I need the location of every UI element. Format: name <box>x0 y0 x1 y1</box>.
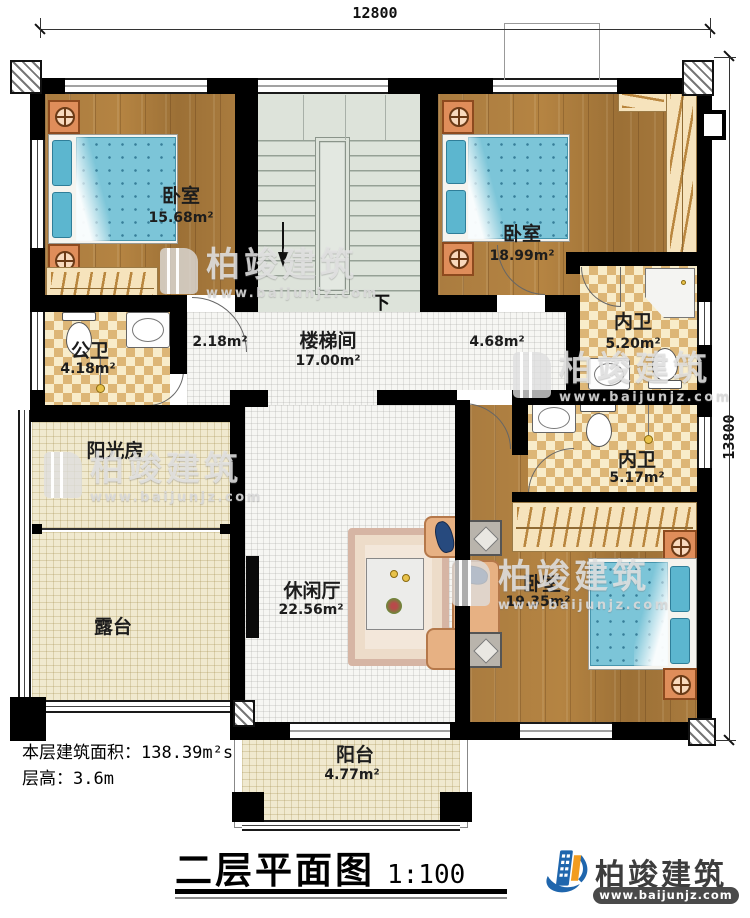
divider-post <box>32 524 42 534</box>
terrace-side-railing <box>18 410 31 702</box>
sink-basin <box>594 363 624 386</box>
bed-sheet-fold <box>76 137 110 241</box>
wall <box>697 345 712 417</box>
stairs-down-label: 下 <box>372 289 390 315</box>
door-arc <box>148 370 184 406</box>
wall <box>455 400 470 725</box>
wall <box>566 266 580 274</box>
plan-scale: 1:100 <box>387 860 465 890</box>
wall <box>566 390 712 405</box>
room-label: 阳台 <box>315 745 395 767</box>
wall <box>697 468 712 724</box>
room-area: 2.18m² <box>180 334 260 350</box>
window <box>30 140 45 248</box>
nightstand <box>48 100 80 134</box>
plan-notes: 本层建筑面积：138.39m²s 层高：3.6m <box>22 740 233 793</box>
nightstand <box>442 242 474 276</box>
nightstand-lamp-icon <box>671 675 691 695</box>
balcony-railing <box>242 820 460 831</box>
room-area: 4.18m² <box>46 361 130 377</box>
room-label: 内卫 <box>593 312 673 334</box>
note-floor-height: 层高：3.6m <box>22 766 233 792</box>
wall <box>235 78 258 312</box>
toilet <box>586 413 612 447</box>
shower-drain-icon <box>681 280 686 285</box>
column <box>10 697 46 741</box>
dimension-extension <box>40 18 41 38</box>
side-table-top <box>473 526 498 551</box>
wall-pier-hatch <box>682 60 714 96</box>
window <box>697 417 712 468</box>
sink-basin <box>538 407 570 429</box>
sink-basin <box>132 318 164 342</box>
balcony-door <box>290 722 450 740</box>
wall <box>545 295 580 312</box>
room-area: 15.68m² <box>136 210 226 226</box>
wall-pier-hatch <box>10 60 42 94</box>
dimension-extension <box>714 57 736 58</box>
wall <box>512 390 568 405</box>
floor-drain-icon <box>96 384 105 393</box>
wardrobe-rod <box>50 288 154 290</box>
nightstand-lamp-icon <box>449 107 469 127</box>
room-area: 18.99m² <box>477 248 567 264</box>
room-area: 17.00m² <box>278 353 378 369</box>
pillow <box>52 192 72 238</box>
wall-pier-hatch <box>688 718 716 746</box>
side-table <box>468 632 502 668</box>
cup-icon <box>402 574 410 582</box>
wall <box>388 78 493 94</box>
room-label: 卧室 <box>500 574 584 596</box>
stair-flight-right <box>350 140 420 295</box>
wall <box>30 295 187 312</box>
room-area: 19.35m² <box>492 594 584 610</box>
side-table-top <box>473 638 498 663</box>
roof-outline <box>504 23 600 80</box>
brand-logo-icon <box>543 846 591 898</box>
window <box>493 78 617 94</box>
nightstand <box>442 100 474 134</box>
wall <box>420 78 438 312</box>
room-area: 5.17m² <box>595 470 679 486</box>
room-label: 内卫 <box>597 450 677 472</box>
wall <box>512 492 697 502</box>
stair-flight-left <box>258 140 315 295</box>
toilet-tank <box>62 312 96 321</box>
column <box>232 792 264 822</box>
dimension-line <box>729 57 730 741</box>
duct-box <box>700 110 726 140</box>
room-label: 公卫 <box>50 341 130 363</box>
wardrobe-rod <box>682 86 684 256</box>
drain-cord <box>648 403 649 437</box>
wall <box>30 405 245 422</box>
column <box>440 792 472 822</box>
wall <box>612 722 692 740</box>
toilet-tank <box>648 380 682 389</box>
tv <box>246 556 259 638</box>
room-label: 楼梯间 <box>273 331 383 353</box>
room-area: 4.68m² <box>457 334 537 350</box>
stair-landing-line <box>345 95 346 140</box>
floor-drain-icon <box>644 435 653 444</box>
floor-corridor-right <box>438 312 566 390</box>
floor-plan-page: 卧室 15.68m² 卧室 18.99m² 内卫 5.20m² 公卫 4.18m… <box>0 0 750 918</box>
pillow <box>52 140 72 186</box>
room-label: 卧室 <box>482 224 562 246</box>
floor-sunroom <box>32 422 230 530</box>
sunroom-terrace-divider <box>34 528 228 530</box>
coffee-table <box>366 558 424 630</box>
room-area: 5.20m² <box>591 336 675 352</box>
pillow <box>446 190 466 234</box>
wall <box>450 722 520 740</box>
cup-icon <box>390 570 398 578</box>
wall <box>377 390 457 405</box>
title-block: 二层平面图1:100 <box>175 840 505 894</box>
wardrobe <box>666 82 697 260</box>
title-underline-thin <box>175 897 507 899</box>
stair-core <box>315 137 350 295</box>
room-label: 阳光房 <box>65 441 165 463</box>
stair-landing-line <box>303 95 304 140</box>
side-table <box>468 520 502 556</box>
window <box>65 78 207 94</box>
divider-post <box>220 524 230 534</box>
pillow <box>670 618 690 664</box>
wall <box>438 295 497 312</box>
nightstand-lamp-icon <box>671 537 691 557</box>
plan-title: 二层平面图 <box>175 849 375 892</box>
pillow <box>446 140 466 184</box>
stair-direction-arrow <box>282 222 284 254</box>
window <box>697 302 712 345</box>
nightstand <box>663 668 697 700</box>
stair-landing-line <box>385 95 386 140</box>
nightstand-lamp-icon <box>55 107 75 127</box>
window <box>258 78 388 94</box>
room-label: 露台 <box>63 617 163 639</box>
toilet <box>652 348 678 381</box>
wall <box>512 405 528 455</box>
nightstand-lamp-icon <box>449 249 469 269</box>
room-area: 4.77m² <box>307 767 397 783</box>
dimension-top-value: 12800 <box>330 4 420 22</box>
dimension-extension <box>710 18 711 38</box>
terrace-railing <box>18 700 230 713</box>
wall-pier-hatch <box>233 700 255 727</box>
brand-url: www.baijunjz.com <box>593 887 739 904</box>
flower-vase-icon <box>386 598 402 614</box>
dimension-extension <box>714 740 736 741</box>
stair-arrowhead <box>278 252 288 267</box>
bed-sheet-fold <box>634 562 668 666</box>
window <box>30 312 45 390</box>
room-label: 休闲厅 <box>262 581 362 603</box>
title-underline <box>175 889 507 894</box>
wardrobe-rod <box>516 527 693 529</box>
dimension-line <box>40 29 710 30</box>
wall <box>230 405 245 725</box>
wall <box>566 312 580 390</box>
note-floor-area: 本层建筑面积：138.39m²s <box>22 740 233 766</box>
wall <box>566 252 697 266</box>
room-label: 卧室 <box>141 186 221 208</box>
window <box>520 722 612 740</box>
pillow <box>670 566 690 612</box>
room-area: 22.56m² <box>261 602 361 618</box>
brand-block: 柏竣建筑 www.baijunjz.com <box>543 846 743 902</box>
